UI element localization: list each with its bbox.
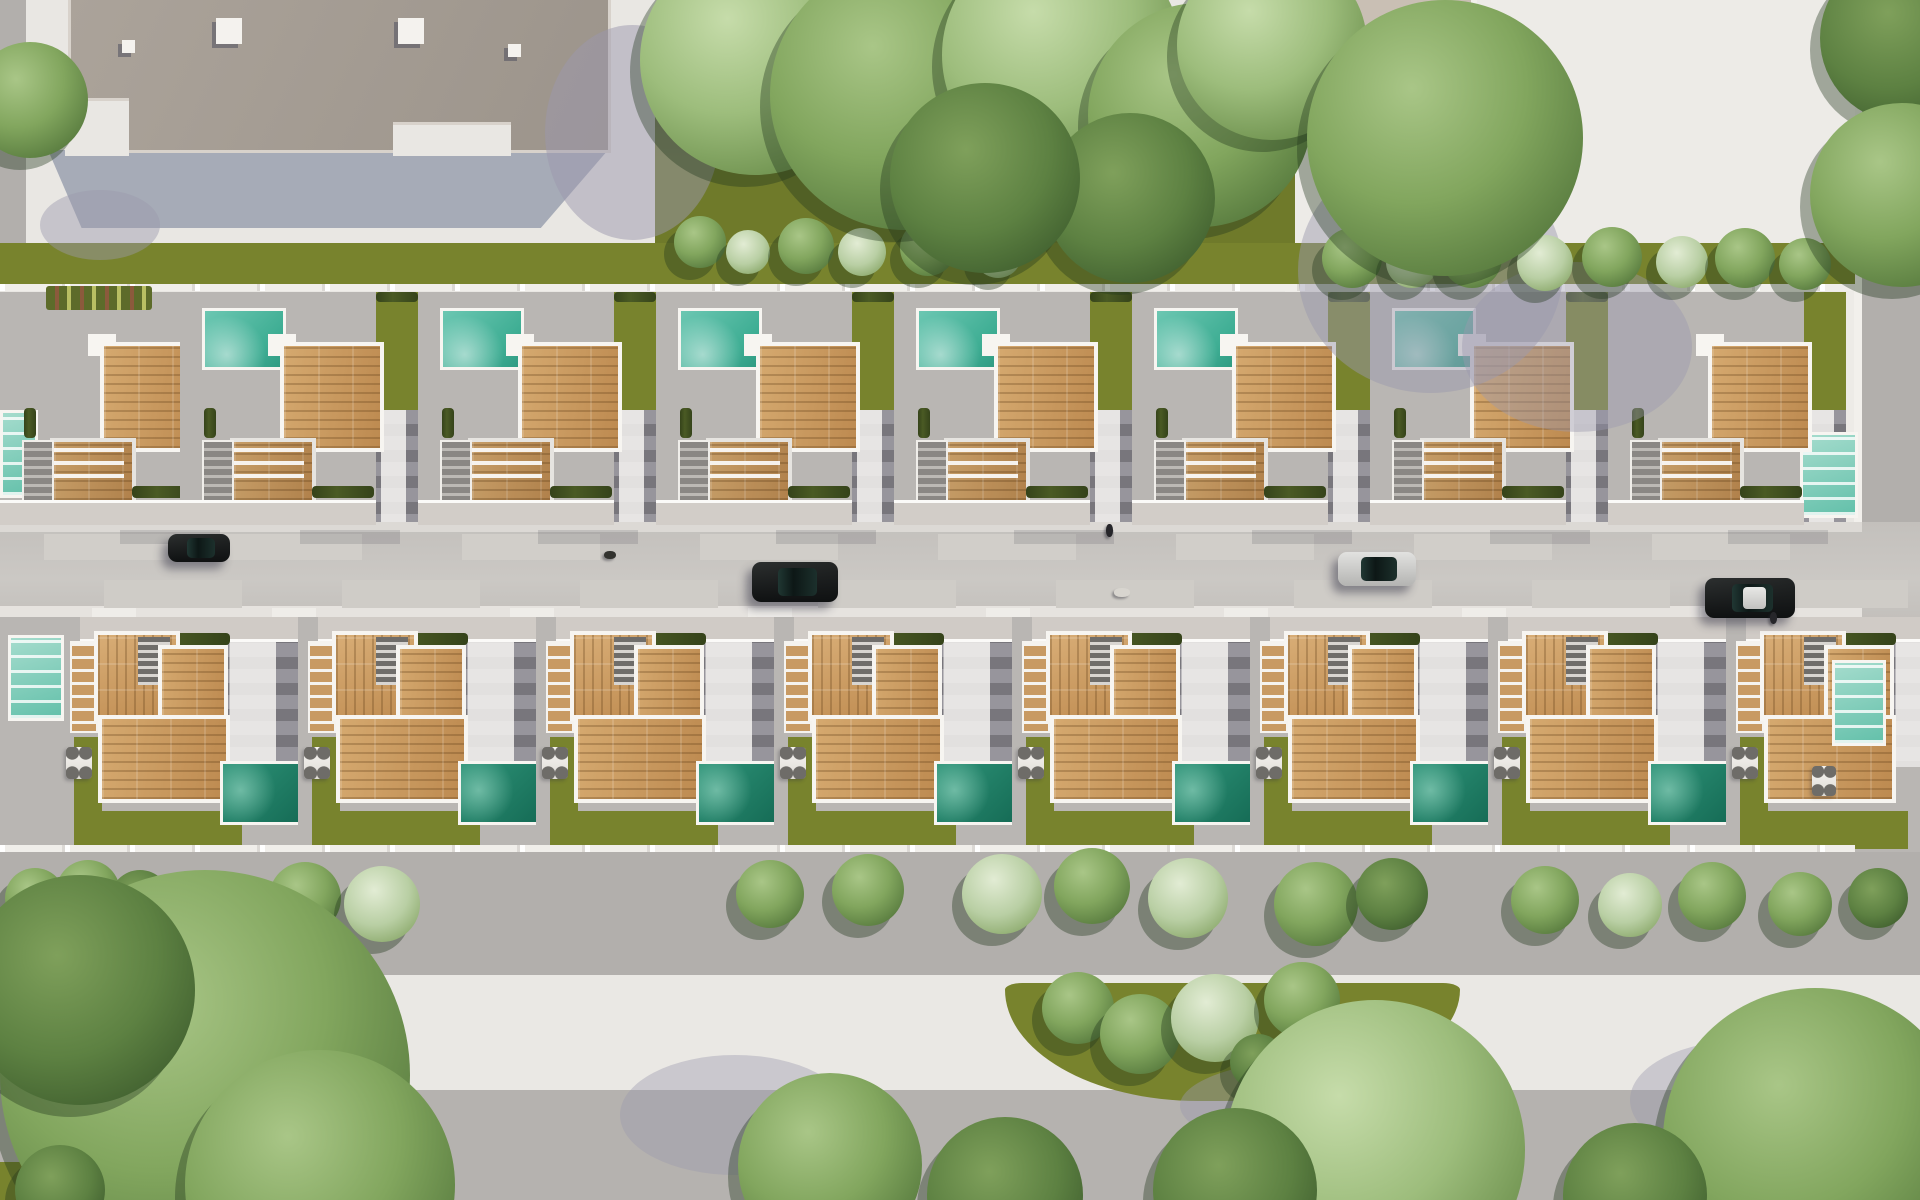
bush bbox=[962, 854, 1042, 934]
facade-shadow-on-road bbox=[1252, 530, 1352, 544]
bush bbox=[726, 230, 770, 274]
rear-garden bbox=[74, 811, 242, 849]
pedestrian-figure bbox=[1770, 612, 1777, 624]
facade-strip bbox=[1132, 500, 1328, 525]
patio-table-set bbox=[1732, 747, 1758, 779]
villa-lot-bottom bbox=[1488, 617, 1726, 852]
plunge-pool bbox=[1832, 660, 1886, 746]
front-hedge bbox=[1026, 486, 1088, 498]
entry-walk bbox=[272, 608, 316, 617]
facade-shadow-on-road bbox=[1014, 530, 1114, 544]
rear-garden bbox=[1740, 811, 1908, 849]
bush bbox=[736, 860, 804, 928]
roof-deck-main bbox=[812, 715, 944, 803]
roof-deck-main bbox=[1288, 715, 1420, 803]
bush bbox=[1598, 873, 1662, 937]
bush bbox=[832, 854, 904, 926]
plunge-pool bbox=[458, 761, 544, 825]
villa-lot-bottom bbox=[774, 617, 1012, 852]
bush bbox=[1768, 872, 1832, 936]
driveway-pad bbox=[818, 580, 956, 608]
bush bbox=[344, 866, 420, 942]
side-planter bbox=[1394, 408, 1406, 438]
facade-shadow-on-road bbox=[1728, 530, 1828, 544]
entry-walk bbox=[1462, 608, 1506, 617]
villa-lot-bottom bbox=[298, 617, 536, 852]
patio-table-set bbox=[1812, 766, 1836, 796]
plunge-pool bbox=[220, 761, 306, 825]
bush bbox=[1848, 868, 1908, 928]
bush bbox=[1148, 858, 1228, 938]
facade-strip bbox=[418, 500, 614, 525]
facade-strip bbox=[180, 500, 376, 525]
pergola-slats bbox=[54, 442, 124, 478]
patio-table-set bbox=[1018, 747, 1044, 779]
entry-walk bbox=[1224, 608, 1268, 617]
driveway-pad bbox=[104, 580, 242, 608]
rear-garden bbox=[788, 811, 956, 849]
car-glass bbox=[1361, 557, 1397, 580]
villa-lot-top bbox=[180, 292, 418, 522]
plunge-pool bbox=[1172, 761, 1258, 825]
plunge-pool bbox=[1410, 761, 1496, 825]
pedestrian-figure bbox=[604, 551, 616, 559]
roof-deck-main bbox=[756, 342, 860, 452]
villa-lot-top bbox=[656, 292, 894, 522]
front-hedge bbox=[550, 486, 612, 498]
bush bbox=[1678, 862, 1746, 930]
rear-garden bbox=[312, 811, 480, 849]
roof-vent bbox=[216, 18, 242, 44]
roof-deck-main bbox=[336, 715, 468, 803]
roof-deck-main bbox=[994, 342, 1098, 452]
facade-strip bbox=[1370, 500, 1566, 525]
bush bbox=[778, 218, 834, 274]
roof-vent bbox=[122, 40, 135, 53]
rear-garden bbox=[550, 811, 718, 849]
villa-lot-bottom bbox=[1012, 617, 1250, 852]
pergola-slats bbox=[234, 442, 304, 478]
roof-deck-main bbox=[574, 715, 706, 803]
villa-lot-bottom bbox=[1250, 617, 1488, 852]
rear-fence-bottom bbox=[0, 845, 1855, 852]
facade-strip bbox=[894, 500, 1090, 525]
car-roof-highlight bbox=[1743, 587, 1766, 609]
villa-lot-bottom bbox=[60, 617, 298, 852]
entry-walk bbox=[748, 608, 792, 617]
patio-table-set bbox=[780, 747, 806, 779]
roof-deck-main bbox=[1526, 715, 1658, 803]
car-glass bbox=[778, 568, 818, 595]
front-hedge bbox=[1740, 486, 1802, 498]
side-planter bbox=[24, 408, 36, 438]
facade-strip bbox=[656, 500, 852, 525]
bush bbox=[1656, 236, 1708, 288]
pedestrian-figure bbox=[1114, 588, 1130, 597]
villa-lot-top bbox=[418, 292, 656, 522]
driveway-pad bbox=[342, 580, 480, 608]
front-hedge bbox=[1502, 486, 1564, 498]
bush bbox=[1511, 866, 1579, 934]
entry-walk bbox=[986, 608, 1030, 617]
patio-table-set bbox=[304, 747, 330, 779]
villa-lot-bottom bbox=[1726, 617, 1920, 852]
roof-vent bbox=[508, 44, 521, 57]
parked-car bbox=[168, 534, 230, 562]
plunge-pool bbox=[8, 635, 64, 721]
building-roof bbox=[68, 0, 611, 153]
bush bbox=[1356, 858, 1428, 930]
roof-deck-main bbox=[98, 715, 230, 803]
villa-lot-top bbox=[894, 292, 1132, 522]
facade-strip bbox=[0, 500, 196, 525]
patio-table-set bbox=[1494, 747, 1520, 779]
parked-car bbox=[1705, 578, 1795, 618]
entry-walk bbox=[510, 608, 554, 617]
pergola-slats bbox=[1662, 442, 1732, 478]
tree-shadow-on-pavement bbox=[40, 190, 160, 260]
pergola-slats bbox=[1186, 442, 1256, 478]
facade-shadow-on-road bbox=[538, 530, 638, 544]
patio-table-set bbox=[66, 747, 92, 779]
roof-deck-main bbox=[1232, 342, 1336, 452]
driveway-pad bbox=[580, 580, 718, 608]
side-planter bbox=[204, 408, 216, 438]
roof-vent bbox=[398, 18, 424, 44]
flower-planter bbox=[46, 286, 152, 310]
bush bbox=[1054, 848, 1130, 924]
rear-garden bbox=[1502, 811, 1670, 849]
plunge-pool bbox=[696, 761, 782, 825]
building-roof-notch bbox=[393, 122, 511, 156]
plunge-pool bbox=[1648, 761, 1734, 825]
side-planter bbox=[918, 408, 930, 438]
side-planter bbox=[680, 408, 692, 438]
tree bbox=[1307, 0, 1583, 276]
pergola-slats bbox=[1424, 442, 1494, 478]
side-planter bbox=[1156, 408, 1168, 438]
tree bbox=[890, 83, 1080, 273]
facade-strip bbox=[1608, 500, 1804, 525]
facade-shadow-on-road bbox=[300, 530, 400, 544]
car-glass bbox=[187, 538, 216, 557]
side-planter bbox=[442, 408, 454, 438]
garden-hedge bbox=[376, 292, 418, 302]
rear-garden bbox=[1026, 811, 1194, 849]
facade-shadow-on-road bbox=[1490, 530, 1590, 544]
plunge-pool bbox=[934, 761, 1020, 825]
front-hedge bbox=[788, 486, 850, 498]
garden-hedge bbox=[614, 292, 656, 302]
pergola-slats bbox=[948, 442, 1018, 478]
rear-garden bbox=[1264, 811, 1432, 849]
garden-hedge bbox=[852, 292, 894, 302]
roof-deck-main bbox=[518, 342, 622, 452]
patio-table-set bbox=[542, 747, 568, 779]
bush bbox=[1582, 227, 1642, 287]
pedestrian-figure bbox=[1106, 524, 1113, 537]
patio-table-set bbox=[1256, 747, 1282, 779]
pergola-slats bbox=[710, 442, 780, 478]
villa-lot-bottom bbox=[536, 617, 774, 852]
driveway-pad bbox=[1532, 580, 1670, 608]
roof-deck-main bbox=[1050, 715, 1182, 803]
front-hedge bbox=[312, 486, 374, 498]
parked-car bbox=[752, 562, 838, 602]
roof-deck-main bbox=[1708, 342, 1812, 452]
roof-deck-main bbox=[280, 342, 384, 452]
entry-walk bbox=[92, 608, 136, 617]
pergola-slats bbox=[472, 442, 542, 478]
front-hedge bbox=[1264, 486, 1326, 498]
facade-shadow-on-road bbox=[776, 530, 876, 544]
aerial-render-canvas bbox=[0, 0, 1920, 1200]
parked-car bbox=[1338, 552, 1416, 586]
bush bbox=[1715, 228, 1775, 288]
